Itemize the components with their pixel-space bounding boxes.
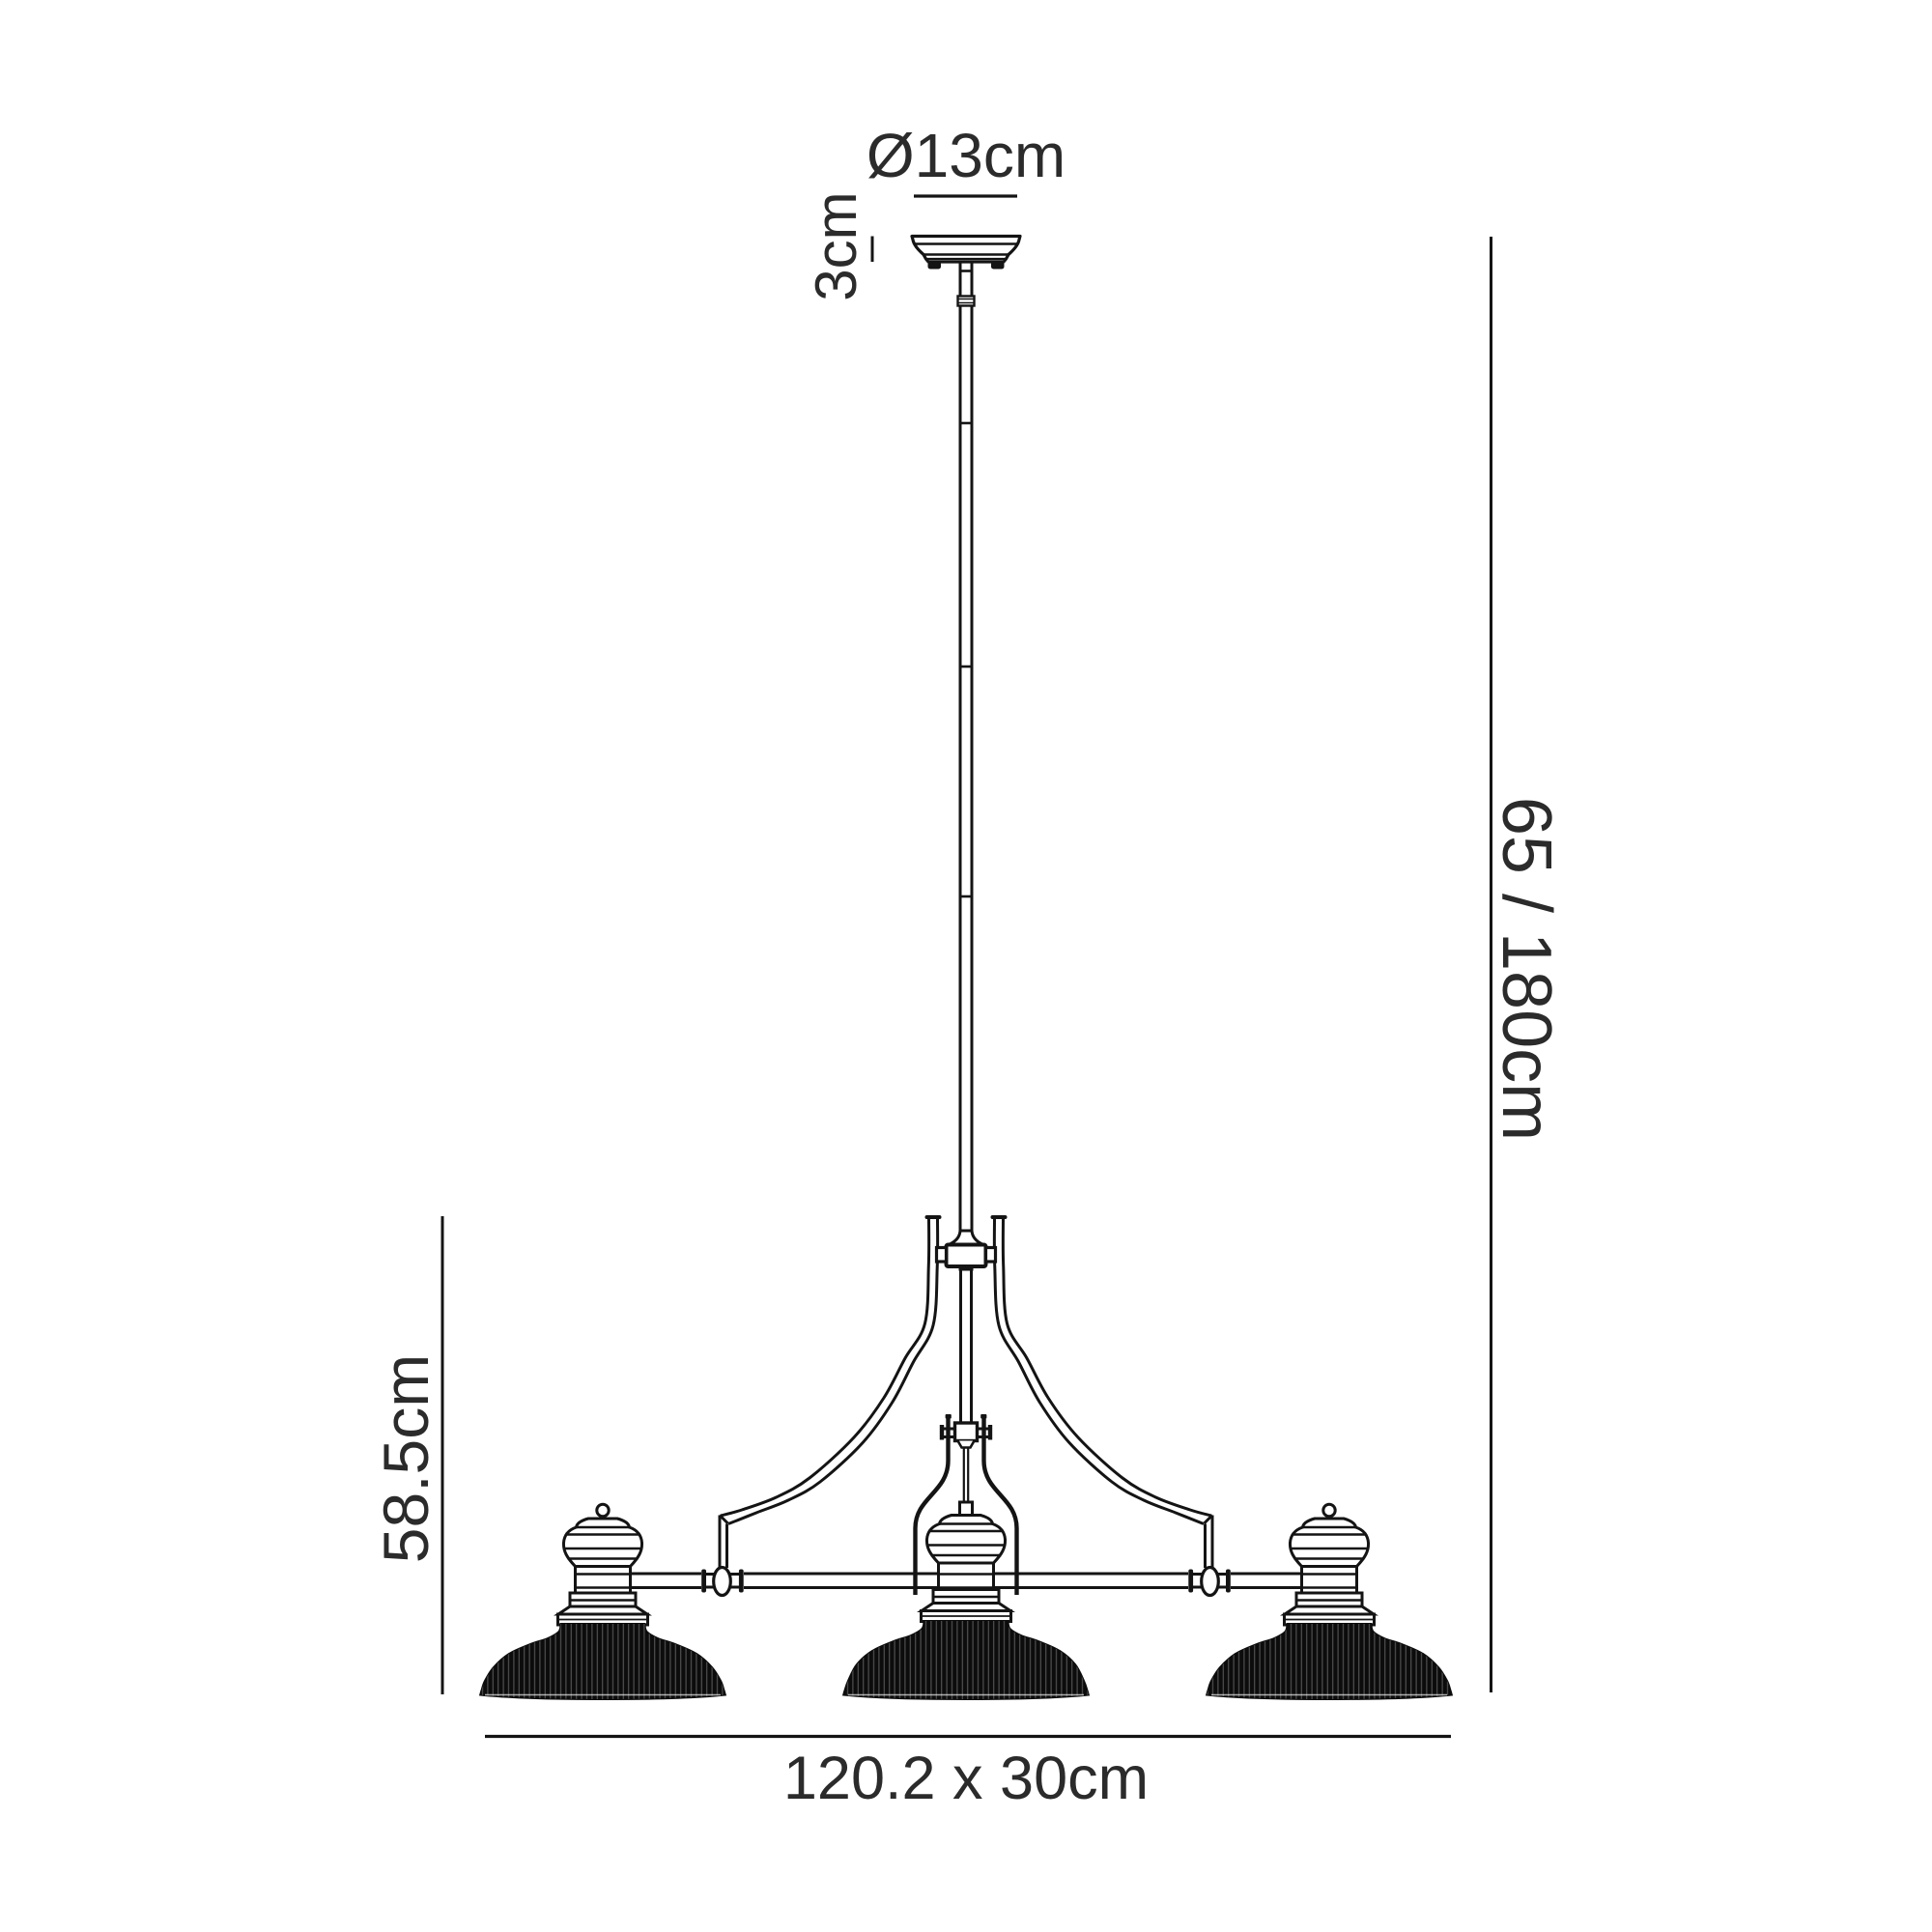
svg-text:Ø13cm: Ø13cm [867,121,1065,190]
svg-text:65 / 180cm: 65 / 180cm [1488,797,1565,1141]
svg-text:3cm: 3cm [804,191,868,300]
svg-text:58.5cm: 58.5cm [370,1354,441,1563]
svg-text:120.2 x 30cm: 120.2 x 30cm [783,1745,1149,1812]
